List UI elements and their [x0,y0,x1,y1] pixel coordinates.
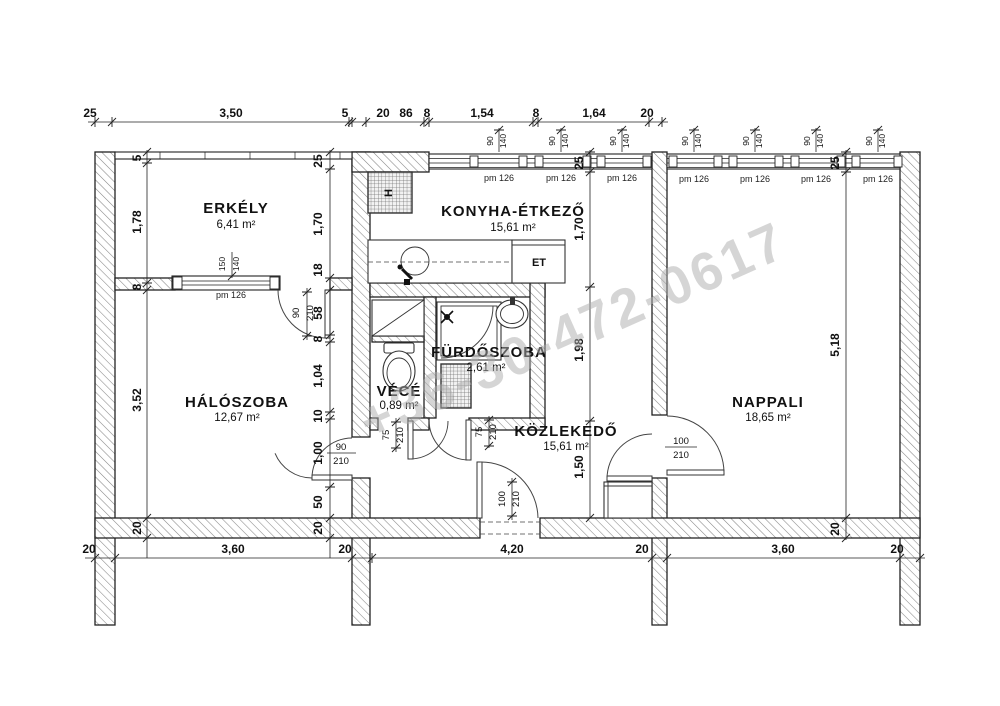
wall-mid-right-lower [652,478,667,625]
door-height: 210 [305,305,316,321]
room-name-erkely: ERKÉLY [203,200,268,217]
window-height: 140 [815,134,825,148]
dim-liv-0: 25 [828,156,842,170]
living-room-door [607,416,724,481]
dim-bed-2: 1,04 [311,364,325,388]
window-sill-label: pm 126 [679,174,709,184]
wall-top-kitchen [352,152,429,172]
dim-bed-3: 10 [311,409,325,423]
dim-top-9: 20 [640,106,654,120]
wall-bath-top [370,283,545,297]
dining-table: ET [512,240,565,283]
dim-left-2: 8 [130,283,144,290]
window-width: 90 [485,136,495,146]
dim-bottom-4: 20 [635,542,649,556]
door-width: 100 [497,491,508,507]
window-width: 90 [680,136,690,146]
dim-bottom-6: 20 [890,542,904,556]
window-width: 90 [608,136,618,146]
room-area-nappali: 18,65 m² [745,412,791,424]
dim-top-3: 20 [376,106,390,120]
wall-balcony-divider-a [115,278,175,290]
room-area-haloszoba: 12,67 m² [214,412,260,424]
dim-balc-0: 25 [311,154,325,168]
dim-bed-6: 20 [311,521,325,535]
door-width: 90 [291,308,302,319]
door-width: 100 [673,436,689,447]
room-name-konyha: KONYHA-ÉTKEZŐ [441,202,585,220]
room-name-haloszoba: HÁLÓSZOBA [185,393,289,411]
dining-table-label: ET [532,257,546,269]
window-sill-label: pm 126 [607,173,637,183]
window-sill-label: pm 126 [484,173,514,183]
window-sill-label: pm 126 [546,173,576,183]
pantry [372,300,424,336]
window-width: 90 [802,136,812,146]
window-height: 140 [877,134,887,148]
room-area-kozlekedo: 15,61 m² [543,441,589,453]
living-door-dim: 100 210 [665,436,697,461]
dim-bed-5: 50 [311,495,325,509]
dim-top-8: 1,64 [582,106,606,120]
dim-top-5: 8 [424,106,431,120]
entry-threshold [480,522,540,534]
room-name-kozlekedo: KÖZLEKEDŐ [514,422,617,440]
floor-plan-drawing: H ET [0,0,1000,706]
window-height: 140 [560,134,570,148]
window-width: 90 [741,136,751,146]
bathroom-door [429,420,471,460]
wall-mid-left-lower [352,478,370,625]
door-width: 75 [474,427,485,438]
bedroom-balcony-window [172,276,280,290]
window-height: 140 [693,134,703,148]
window-band-kitchen [429,154,652,169]
wall-pantry-bottom [372,336,424,342]
door-height: 210 [511,491,522,507]
window-band-living [667,154,902,169]
dim-bed-4: 1,00 [311,441,325,465]
entry-door-dim: 100 210 [497,478,522,520]
wall-balcony-divider-b [330,278,352,290]
door-height: 210 [488,424,499,440]
dim-top-7: 8 [533,106,540,120]
door-height: 210 [673,450,689,461]
door-width: 90 [336,442,347,453]
dim-liv-2: 20 [828,522,842,536]
window-height: 140 [754,134,764,148]
dim-left-4: 20 [130,521,144,535]
dim-bottom-2: 20 [338,542,352,556]
room-name-nappali: NAPPALI [732,394,804,411]
dim-bed-1: 8 [311,335,325,342]
dim-top-2: 5 [342,106,349,120]
dim-left-3: 3,52 [130,388,144,412]
window-height: 140 [498,134,508,148]
bedroom-door-dim: 90 210 [327,442,356,467]
window-height: 140 [231,257,241,271]
dim-bottom-1: 3,60 [221,542,245,556]
dim-top-0: 25 [83,106,97,120]
window-width: 90 [547,136,557,146]
dim-bottom-5: 3,60 [771,542,795,556]
dim-top-4: 86 [399,106,413,120]
entry-door [477,462,538,518]
wall-bottom-left [95,518,480,538]
dim-liv-1: 5,18 [828,333,842,357]
door-height: 210 [333,456,349,467]
hall-cabinet [604,482,652,518]
kitchen-counter [368,240,512,285]
dim-kit-1: 1,70 [572,217,586,241]
dim-top-6: 1,54 [470,106,494,120]
dim-balc-1: 1,70 [311,212,325,236]
dim-kit-0: 25 [572,156,586,170]
room-area-erkely: 6,41 m² [217,219,256,231]
dim-top-1: 3,50 [219,106,243,120]
kitchen-unit-label: H [383,189,395,197]
dim-bottom-3: 4,20 [500,542,524,556]
floor-plan-page: H ET [0,0,1000,706]
dim-left-0: 5 [130,154,144,161]
window-width: 150 [217,257,227,271]
dim-kit-3: 1,50 [572,455,586,479]
window-sill-label: pm 126 [801,174,831,184]
dim-bottom-0: 20 [82,542,96,556]
room-area-konyha: 15,61 m² [490,222,536,234]
window-sill-label: pm 126 [740,174,770,184]
window-sill-label: pm 126 [863,174,893,184]
wall-outer-left [95,152,115,625]
window-height: 140 [621,134,631,148]
dim-balc-2: 18 [311,263,325,277]
window-sill-label: pm 126 [216,290,246,300]
dim-left-1: 1,78 [130,210,144,234]
window-width: 90 [864,136,874,146]
wall-bottom-right [540,518,920,538]
